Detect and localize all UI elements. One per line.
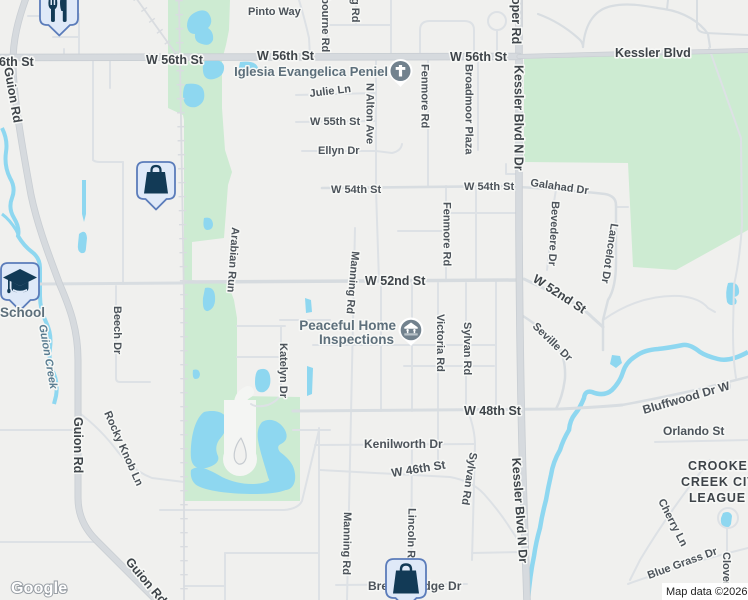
svg-text:Iglesia Evangelica Peniel: Iglesia Evangelica Peniel bbox=[234, 64, 388, 79]
svg-text:Pinto Way: Pinto Way bbox=[248, 6, 302, 18]
svg-text:g Rd: g Rd bbox=[349, 0, 361, 22]
svg-text:Kessler Blvd: Kessler Blvd bbox=[615, 46, 691, 60]
svg-text:Kessler Blvd N Dr: Kessler Blvd N Dr bbox=[512, 65, 526, 171]
svg-text:Victoria Rd: Victoria Rd bbox=[434, 314, 446, 372]
svg-text:W 56th St: W 56th St bbox=[450, 50, 508, 64]
svg-text:Map data ©2026: Map data ©2026 bbox=[666, 586, 748, 598]
svg-text:LEAGUE: LEAGUE bbox=[689, 491, 746, 505]
svg-text:W 55th St: W 55th St bbox=[310, 116, 360, 128]
svg-text:N Alton Ave: N Alton Ave bbox=[364, 83, 376, 144]
svg-text:Lincoln Rd: Lincoln Rd bbox=[405, 508, 418, 565]
svg-text:CROOKE: CROOKE bbox=[688, 459, 748, 473]
svg-text:Fenmore Rd: Fenmore Rd bbox=[419, 64, 431, 128]
svg-text:Kenilworth Dr: Kenilworth Dr bbox=[364, 437, 443, 451]
svg-text:Manning Rd: Manning Rd bbox=[340, 512, 353, 575]
svg-text:Katelyn Dr: Katelyn Dr bbox=[277, 343, 289, 399]
svg-text:W 54th St: W 54th St bbox=[464, 181, 514, 193]
svg-text:Google: Google bbox=[11, 580, 67, 597]
svg-text:W 48th St: W 48th St bbox=[464, 404, 522, 418]
svg-text:Broadmoor Plaza: Broadmoor Plaza bbox=[463, 64, 475, 155]
svg-text:School: School bbox=[0, 305, 45, 320]
svg-text:Inspections: Inspections bbox=[319, 332, 394, 347]
svg-text:W 56th St: W 56th St bbox=[146, 53, 204, 67]
svg-text:Sylvan Rd: Sylvan Rd bbox=[461, 322, 473, 375]
svg-text:Ellyn Dr: Ellyn Dr bbox=[318, 145, 360, 157]
svg-text:Beech Dr: Beech Dr bbox=[111, 306, 123, 355]
svg-text:Orlando St: Orlando St bbox=[663, 424, 724, 438]
svg-text:Fenmore Rd: Fenmore Rd bbox=[441, 202, 453, 266]
svg-text:Guion Rd: Guion Rd bbox=[71, 417, 85, 473]
svg-text:oper Rd: oper Rd bbox=[509, 0, 523, 44]
svg-text:CREEK CIV: CREEK CIV bbox=[681, 475, 748, 489]
svg-text:W 52nd St: W 52nd St bbox=[365, 274, 426, 288]
svg-text:W 54th St: W 54th St bbox=[331, 184, 381, 196]
svg-text:Claybourne Rd: Claybourne Rd bbox=[319, 0, 331, 52]
svg-text:W 56th St: W 56th St bbox=[257, 49, 315, 63]
svg-text:Peaceful Home: Peaceful Home bbox=[299, 318, 396, 333]
